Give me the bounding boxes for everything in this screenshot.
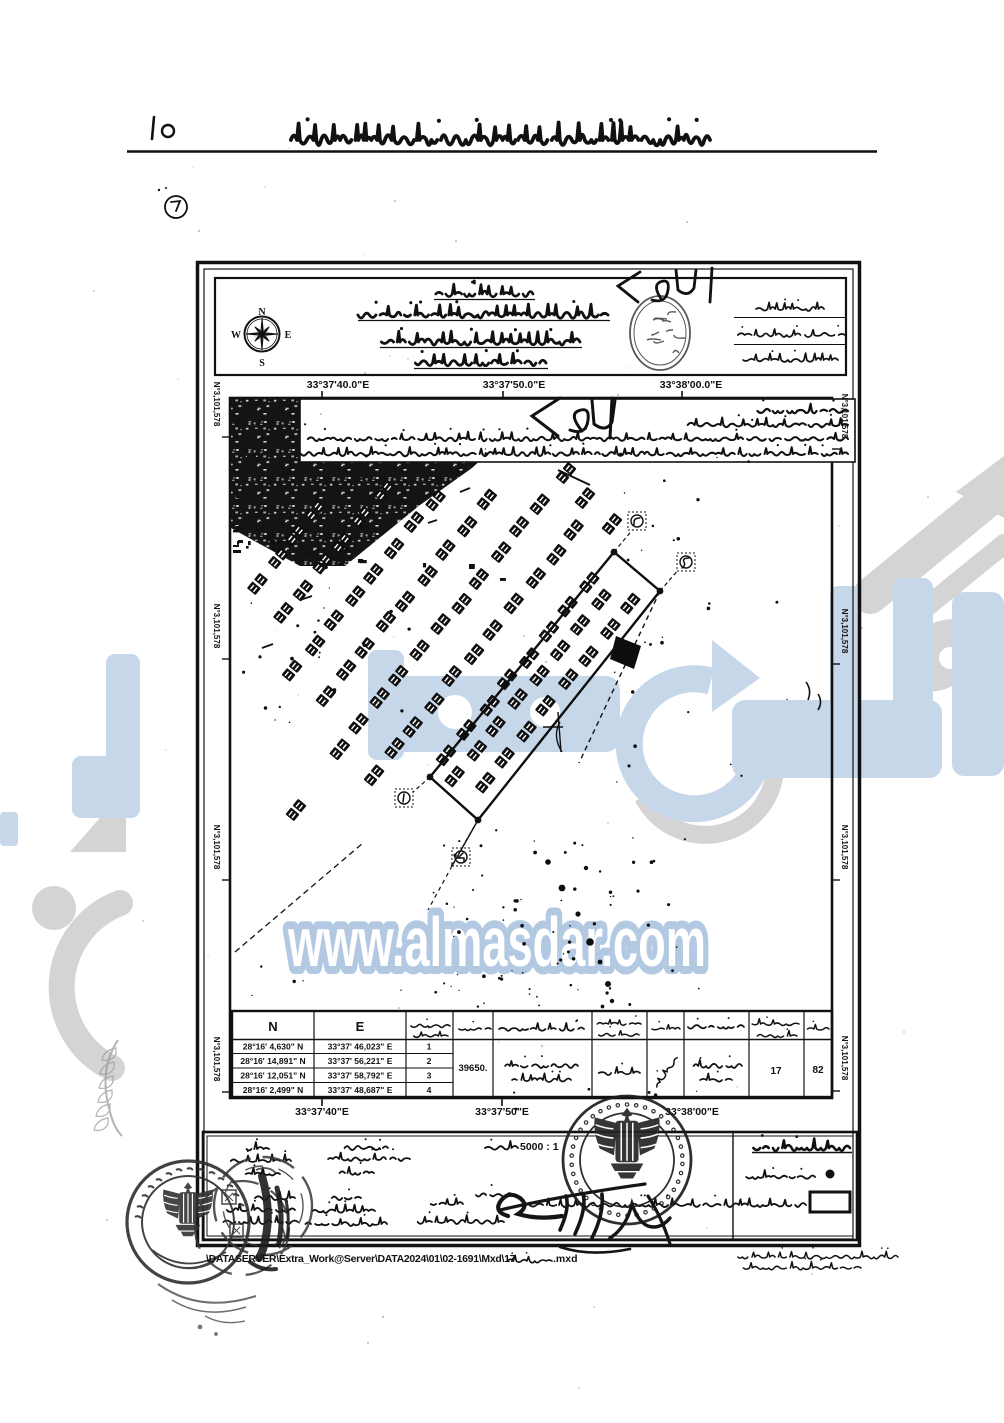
svg-text:39650.: 39650. (458, 1063, 487, 1074)
svg-text:2: 2 (427, 1056, 432, 1066)
svg-text:28°16' 4,630" N: 28°16' 4,630" N (243, 1042, 304, 1052)
svg-text:33°37'50.0"E: 33°37'50.0"E (483, 379, 545, 391)
svg-text:4: 4 (427, 1085, 432, 1095)
svg-text:N°3,101,578: N°3,101,578 (840, 394, 849, 439)
svg-text:28°16' 12,051" N: 28°16' 12,051" N (240, 1071, 305, 1081)
svg-text:E: E (285, 330, 292, 341)
svg-text:82: 82 (812, 1065, 824, 1076)
svg-text:28°16' 14,891" N: 28°16' 14,891" N (240, 1056, 305, 1066)
svg-text:N°3,101,578: N°3,101,578 (212, 825, 221, 870)
svg-text:E: E (356, 1019, 365, 1034)
svg-text:1: 1 (427, 1042, 432, 1052)
svg-text:S: S (259, 358, 265, 369)
svg-text:28°16' 2,499" N: 28°16' 2,499" N (243, 1085, 304, 1095)
svg-text:N°3,101,578: N°3,101,578 (840, 825, 849, 870)
svg-text:N°3,101,578: N°3,101,578 (212, 1037, 221, 1082)
svg-text:W: W (231, 330, 241, 341)
svg-text:N°3,101,578: N°3,101,578 (840, 609, 849, 654)
svg-text:N°3,101,578: N°3,101,578 (212, 382, 221, 427)
svg-text:33°38'00.0"E: 33°38'00.0"E (660, 379, 722, 391)
svg-text:33°37' 58,792" E: 33°37' 58,792" E (328, 1071, 393, 1081)
svg-text:33°37' 56,221" E: 33°37' 56,221" E (328, 1056, 393, 1066)
svg-text:33°37'40.0"E: 33°37'40.0"E (307, 379, 369, 391)
svg-text:.mxd: .mxd (553, 1253, 578, 1265)
svg-text:N°3,101,578: N°3,101,578 (840, 1036, 849, 1081)
svg-text:N°3,101,578: N°3,101,578 (212, 604, 221, 649)
svg-text:33°37' 48,687" E: 33°37' 48,687" E (328, 1085, 393, 1095)
svg-text:\DATASERVER\Extra_Work@Server\: \DATASERVER\Extra_Work@Server\DATA2024\0… (206, 1253, 516, 1265)
svg-text:N: N (258, 307, 266, 318)
svg-text:33°37' 46,023" E: 33°37' 46,023" E (328, 1042, 393, 1052)
svg-text:33°37'40"E: 33°37'40"E (295, 1106, 349, 1118)
svg-text:33°37'50"E: 33°37'50"E (475, 1106, 529, 1118)
svg-text:www.almasdar.com: www.almasdar.com (287, 903, 706, 981)
svg-text:17: 17 (770, 1066, 782, 1077)
svg-text:3: 3 (427, 1071, 432, 1081)
svg-text:5000 : 1: 5000 : 1 (520, 1141, 559, 1153)
svg-text:N: N (268, 1019, 277, 1034)
